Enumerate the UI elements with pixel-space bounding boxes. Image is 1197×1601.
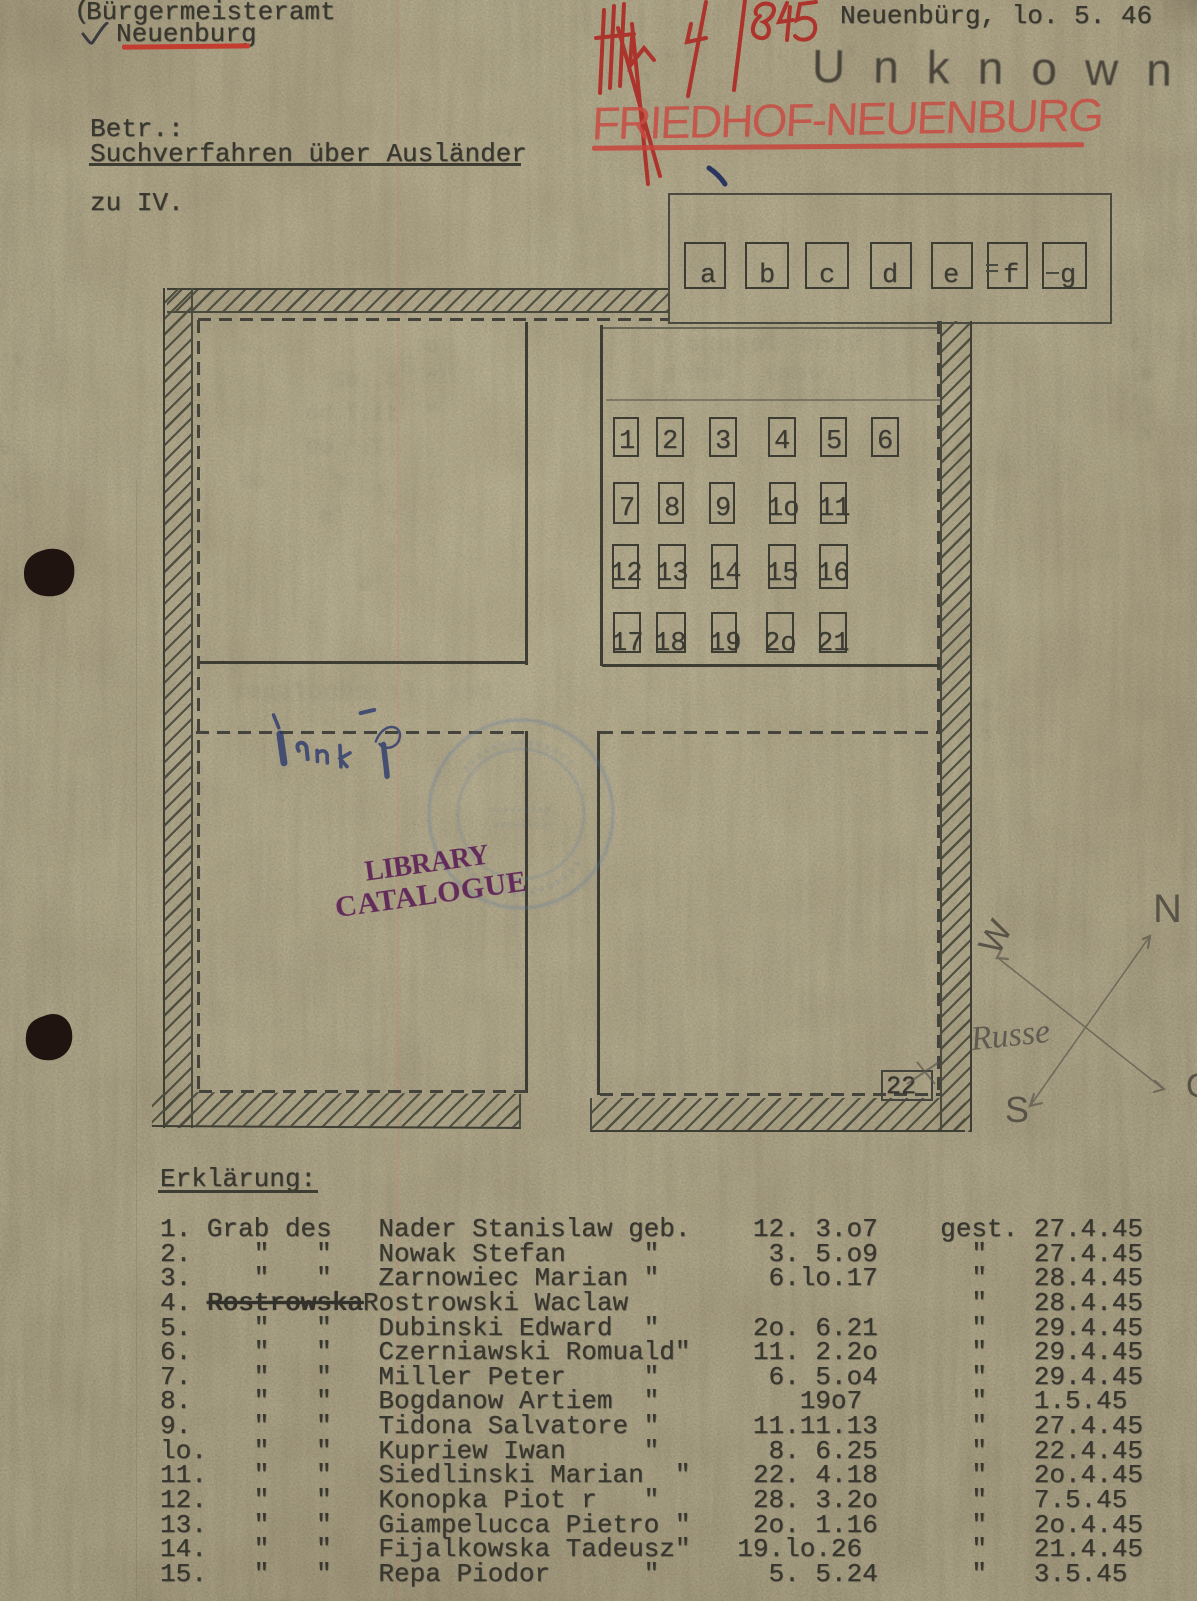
svg-text:W: W	[971, 914, 1020, 960]
svg-text:S: S	[1005, 1089, 1029, 1130]
svg-text:N: N	[1153, 887, 1182, 931]
svg-text:Russe: Russe	[968, 1013, 1052, 1058]
svg-text:O: O	[1186, 1067, 1197, 1105]
